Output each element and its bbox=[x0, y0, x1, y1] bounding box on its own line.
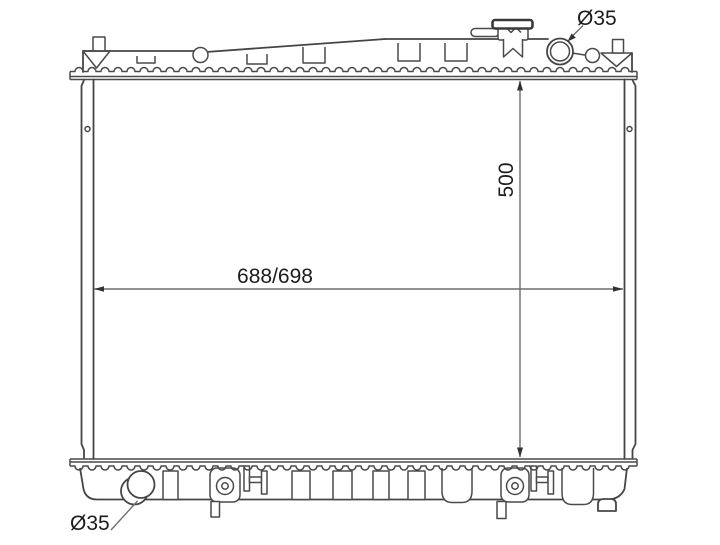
height-arrow-bottom bbox=[517, 448, 523, 458]
top-slot-2 bbox=[247, 54, 267, 64]
left-side-bracket bbox=[82, 80, 94, 460]
top-slot-5 bbox=[445, 43, 467, 61]
height-dimension-label: 500 bbox=[495, 162, 518, 197]
bottom-diameter-callout: Ø35 bbox=[70, 501, 138, 535]
drain-boss bbox=[598, 499, 616, 511]
right-side-bracket bbox=[625, 80, 636, 460]
top-slot-4 bbox=[398, 43, 420, 61]
height-dimension: 500 bbox=[495, 81, 523, 458]
top-tank bbox=[83, 20, 632, 72]
bottom-diameter-leader bbox=[111, 501, 138, 530]
top-left-corner-wedge bbox=[83, 51, 110, 68]
width-arrow-left bbox=[94, 286, 104, 292]
left-pin-bar-b bbox=[262, 471, 268, 494]
bottom-slot-5 bbox=[408, 471, 425, 500]
left-foot-tab bbox=[211, 502, 220, 518]
filler-neck-shield bbox=[504, 39, 523, 57]
right-foot-body bbox=[501, 468, 529, 502]
top-left-mount-tab bbox=[93, 37, 105, 51]
left-foot-body bbox=[210, 468, 240, 502]
top-diameter-label: Ø35 bbox=[577, 7, 617, 30]
top-slot-1 bbox=[137, 56, 155, 63]
bottom-slot-1 bbox=[163, 471, 178, 500]
top-tank-slope-line bbox=[206, 39, 385, 52]
bottom-slot-2 bbox=[292, 471, 310, 500]
width-dimension: 688/698 bbox=[94, 265, 623, 292]
right-bracket-outer bbox=[633, 80, 636, 458]
top-slot-3 bbox=[303, 47, 325, 63]
right-bracket-hole bbox=[627, 127, 632, 132]
bottom-slot-4 bbox=[373, 471, 389, 500]
cap-top-plate bbox=[493, 20, 533, 29]
width-dimension-label: 688/698 bbox=[237, 265, 313, 288]
bottom-tank bbox=[80, 466, 627, 519]
height-arrow-top bbox=[517, 81, 523, 91]
bottom-tank-outline bbox=[80, 468, 627, 500]
top-header-plate bbox=[70, 68, 637, 80]
bottom-round-slot-2 bbox=[562, 468, 594, 505]
top-header-scallop bbox=[70, 68, 637, 72]
right-pin-bar-b bbox=[548, 471, 554, 494]
bottom-diameter-label: Ø35 bbox=[70, 512, 110, 535]
top-right-corner-wedge bbox=[601, 53, 632, 67]
top-right-mount-tab bbox=[613, 40, 624, 54]
top-diameter-callout: Ø35 bbox=[568, 7, 617, 42]
outlet-pipe-upper bbox=[128, 471, 155, 498]
right-pin-crossbar bbox=[537, 477, 549, 483]
bottom-slot-3 bbox=[333, 471, 352, 500]
right-foot-tab bbox=[497, 502, 506, 519]
bottom-round-slot-1 bbox=[442, 468, 472, 503]
left-pin-crossbar bbox=[250, 477, 262, 483]
top-small-boss bbox=[193, 48, 208, 63]
width-arrow-right bbox=[613, 286, 623, 292]
neck-knob bbox=[586, 49, 600, 63]
radiator-diagram: 688/698 500 Ø35 Ø35 bbox=[0, 0, 720, 540]
left-bracket-hole bbox=[85, 127, 90, 132]
left-bracket-outer bbox=[82, 80, 85, 458]
